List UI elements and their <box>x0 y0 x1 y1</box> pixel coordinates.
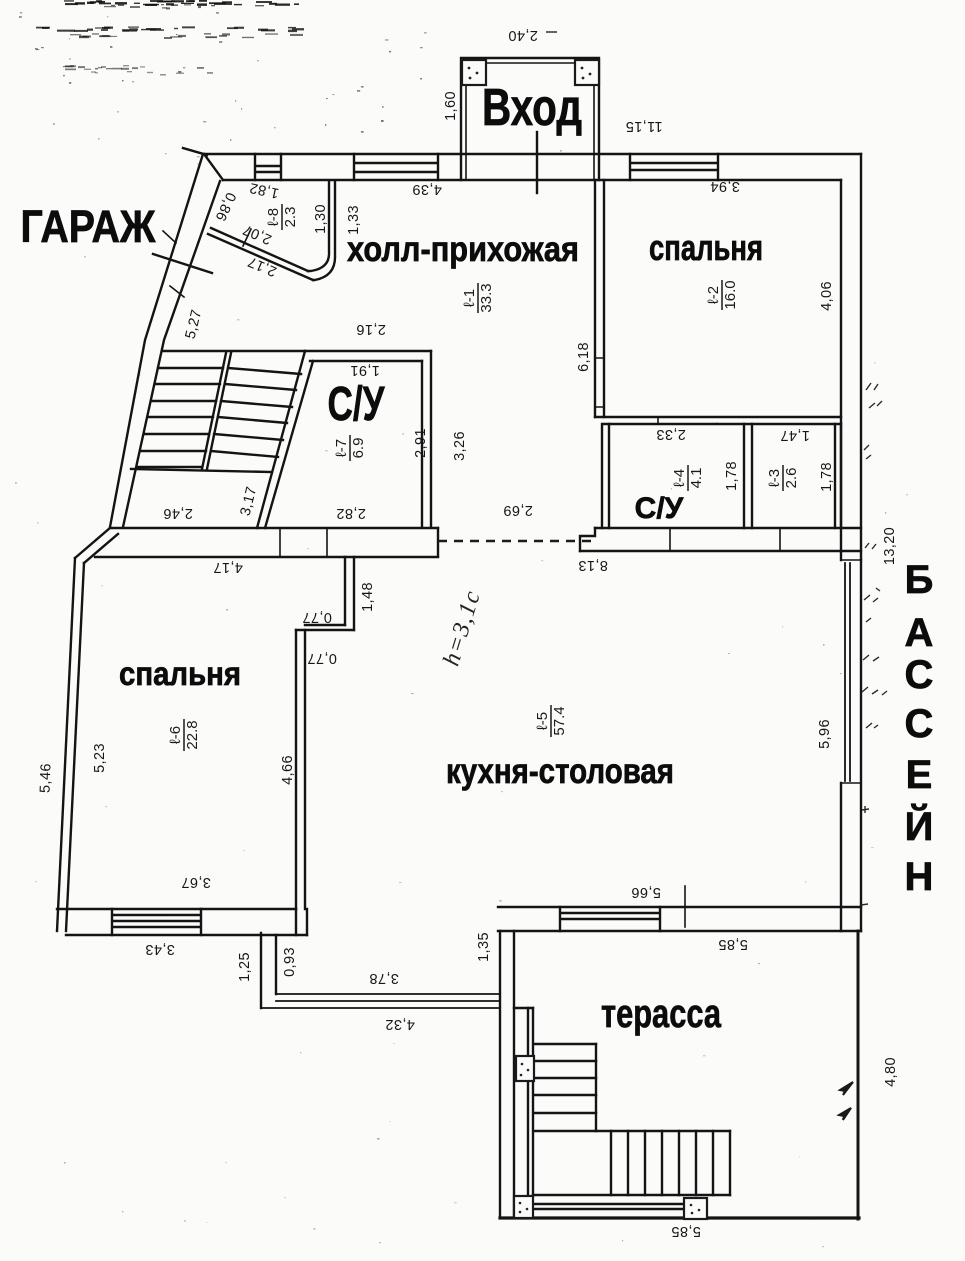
svg-text:С/У: С/У <box>635 492 684 525</box>
svg-text:С/У: С/У <box>328 378 386 431</box>
svg-text:А: А <box>905 611 934 655</box>
svg-text:5,66: 5,66 <box>631 884 661 900</box>
svg-text:ℓ-3: ℓ-3 <box>766 469 783 487</box>
svg-text:3,43: 3,43 <box>145 941 175 957</box>
svg-text:С: С <box>905 653 934 697</box>
svg-text:4,17: 4,17 <box>213 559 243 575</box>
svg-text:ℓ-5: ℓ-5 <box>534 712 551 730</box>
svg-text:22.8: 22.8 <box>184 720 201 749</box>
svg-text:6,18: 6,18 <box>576 342 592 372</box>
svg-text:1,60: 1,60 <box>443 91 459 121</box>
svg-text:Вход: Вход <box>482 79 582 137</box>
svg-text:Н: Н <box>905 855 934 899</box>
svg-text:2,33: 2,33 <box>656 426 686 442</box>
svg-text:3,26: 3,26 <box>452 431 468 461</box>
svg-text:0,77: 0,77 <box>307 650 337 666</box>
svg-text:4,39: 4,39 <box>412 181 442 197</box>
svg-text:0,77: 0,77 <box>302 609 332 625</box>
svg-text:холл-прихожая: холл-прихожая <box>347 230 579 269</box>
svg-text:33.3: 33.3 <box>478 283 495 312</box>
svg-text:1,25: 1,25 <box>237 952 253 982</box>
svg-text:1,47: 1,47 <box>780 427 810 443</box>
svg-text:спальня: спальня <box>649 227 763 268</box>
svg-text:5,85: 5,85 <box>718 936 748 952</box>
svg-text:1,30: 1,30 <box>313 204 329 234</box>
svg-text:3,94: 3,94 <box>710 178 740 194</box>
svg-text:4,80: 4,80 <box>883 1057 899 1087</box>
svg-text:5,46: 5,46 <box>37 763 54 793</box>
svg-text:1,78: 1,78 <box>724 461 740 491</box>
svg-text:6.9: 6.9 <box>350 438 367 459</box>
svg-text:спальня: спальня <box>119 655 241 692</box>
svg-text:1,91: 1,91 <box>350 362 380 378</box>
svg-text:1,48: 1,48 <box>360 582 376 612</box>
svg-text:5,96: 5,96 <box>817 719 833 749</box>
svg-text:5,23: 5,23 <box>92 743 108 773</box>
svg-text:11,15: 11,15 <box>625 118 662 134</box>
svg-text:2.3: 2.3 <box>282 207 299 228</box>
svg-text:ℓ-4: ℓ-4 <box>671 469 688 487</box>
svg-text:16.0: 16.0 <box>722 280 739 309</box>
svg-text:57.4: 57.4 <box>551 706 568 735</box>
svg-text:13,20: 13,20 <box>882 527 898 565</box>
svg-text:4,06: 4,06 <box>819 281 835 311</box>
svg-text:4,66: 4,66 <box>280 755 296 785</box>
svg-text:Й: Й <box>905 803 934 849</box>
svg-text:1,78: 1,78 <box>819 462 835 492</box>
svg-text:2.6: 2.6 <box>783 468 800 489</box>
svg-text:ℓ-6: ℓ-6 <box>167 726 184 744</box>
svg-text:2,16: 2,16 <box>356 321 386 337</box>
svg-text:ℓ-7: ℓ-7 <box>333 439 350 457</box>
svg-text:8,13: 8,13 <box>578 557 608 573</box>
svg-text:С: С <box>905 702 934 746</box>
svg-text:2,40: 2,40 <box>508 27 538 43</box>
svg-text:Е: Е <box>906 753 933 797</box>
svg-text:5,85: 5,85 <box>671 1223 701 1239</box>
svg-text:2,91: 2,91 <box>413 428 429 458</box>
svg-text:Б: Б <box>905 558 934 602</box>
svg-text:2,46: 2,46 <box>163 505 193 521</box>
svg-text:3,78: 3,78 <box>369 970 399 986</box>
svg-text:ℓ-1: ℓ-1 <box>461 289 478 307</box>
svg-text:ℓ-2: ℓ-2 <box>705 286 722 304</box>
svg-text:4.1: 4.1 <box>688 468 705 489</box>
svg-text:ℓ-8: ℓ-8 <box>265 208 282 226</box>
svg-text:4,32: 4,32 <box>385 1016 415 1032</box>
svg-text:0,93: 0,93 <box>282 947 298 977</box>
svg-text:2,69: 2,69 <box>503 502 533 518</box>
svg-text:3,67: 3,67 <box>181 874 211 890</box>
svg-text:кухня-столовая: кухня-столовая <box>446 752 674 791</box>
svg-text:2,82: 2,82 <box>336 505 366 521</box>
svg-text:ГАРАЖ: ГАРАЖ <box>21 201 156 252</box>
svg-text:1,35: 1,35 <box>476 932 492 962</box>
svg-text:терасса: терасса <box>601 992 722 1036</box>
